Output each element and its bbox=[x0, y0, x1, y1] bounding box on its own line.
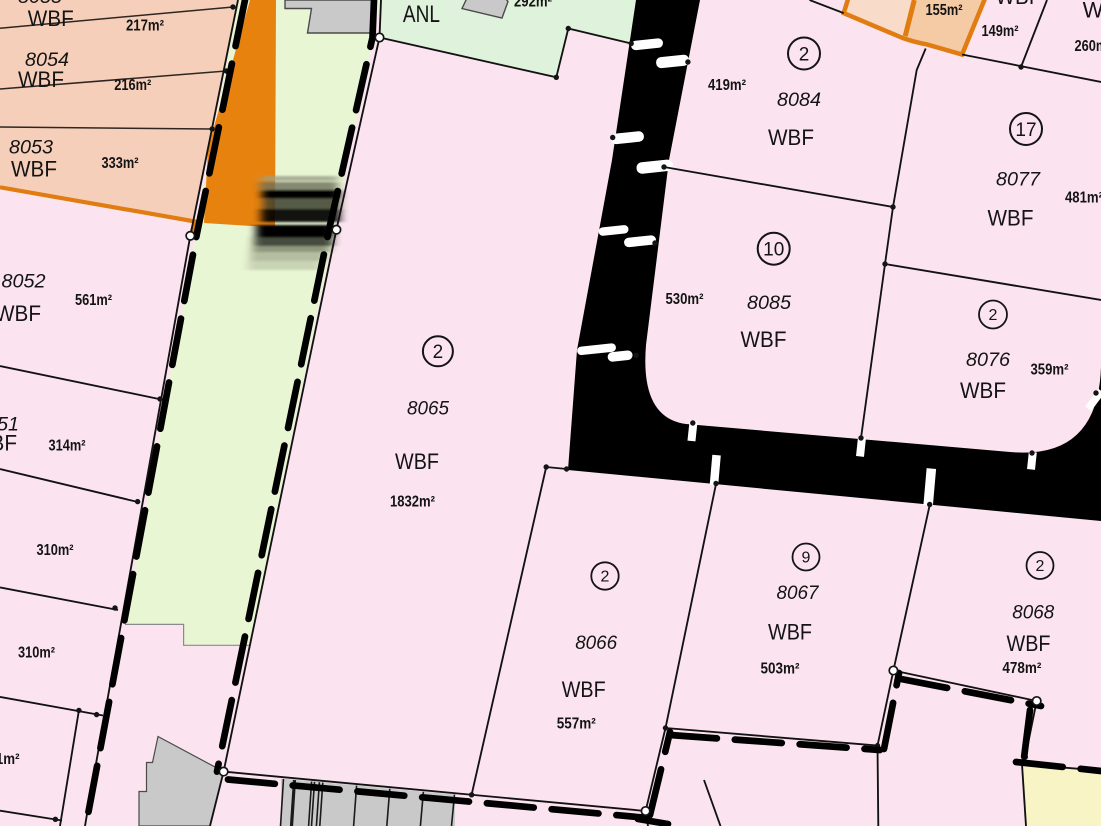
svg-text:91m²: 91m² bbox=[0, 751, 20, 768]
svg-text:292m²: 292m² bbox=[514, 0, 552, 11]
svg-text:359m²: 359m² bbox=[1031, 362, 1069, 379]
svg-text:WBF: WBF bbox=[741, 327, 787, 352]
svg-text:481m²: 481m² bbox=[1065, 190, 1101, 207]
svg-text:WBF: WBF bbox=[11, 157, 57, 182]
svg-text:WBF: WBF bbox=[988, 206, 1034, 231]
svg-text:333m²: 333m² bbox=[102, 155, 139, 172]
svg-text:561m²: 561m² bbox=[75, 292, 112, 309]
svg-text:W: W bbox=[1083, 0, 1101, 23]
svg-text:2: 2 bbox=[989, 307, 998, 324]
svg-text:314m²: 314m² bbox=[49, 438, 86, 455]
svg-text:WBF: WBF bbox=[395, 449, 439, 474]
svg-text:155m²: 155m² bbox=[926, 2, 963, 19]
svg-text:9: 9 bbox=[802, 550, 811, 567]
svg-text:8084: 8084 bbox=[777, 89, 821, 111]
svg-text:260m²: 260m² bbox=[1075, 38, 1101, 55]
svg-text:8065: 8065 bbox=[407, 398, 449, 420]
svg-text:WBF: WBF bbox=[18, 67, 64, 92]
svg-text:2: 2 bbox=[601, 569, 610, 586]
svg-text:WBF: WBF bbox=[28, 6, 74, 31]
svg-text:419m²: 419m² bbox=[708, 77, 746, 94]
svg-text:478m²: 478m² bbox=[1002, 660, 1041, 677]
svg-text:WBF: WBF bbox=[996, 0, 1042, 9]
svg-text:8066: 8066 bbox=[575, 632, 617, 654]
svg-text:2: 2 bbox=[433, 342, 444, 363]
svg-text:WBF: WBF bbox=[562, 677, 606, 702]
svg-text:WBF: WBF bbox=[0, 431, 17, 456]
svg-text:503m²: 503m² bbox=[761, 661, 800, 678]
svg-text:8085: 8085 bbox=[747, 292, 791, 314]
svg-text:8076: 8076 bbox=[966, 349, 1010, 371]
svg-text:8068: 8068 bbox=[1012, 602, 1054, 624]
svg-text:WBF: WBF bbox=[768, 125, 814, 150]
svg-text:10: 10 bbox=[763, 240, 784, 261]
svg-text:17: 17 bbox=[1015, 120, 1036, 141]
svg-text:ANL: ANL bbox=[403, 1, 440, 28]
svg-text:WBF: WBF bbox=[768, 620, 812, 645]
svg-text:557m²: 557m² bbox=[557, 716, 596, 733]
svg-text:1832m²: 1832m² bbox=[390, 494, 435, 511]
svg-text:2: 2 bbox=[1036, 558, 1045, 575]
svg-text:217m²: 217m² bbox=[126, 18, 164, 35]
svg-text:2: 2 bbox=[799, 45, 810, 66]
svg-text:310m²: 310m² bbox=[37, 542, 74, 559]
svg-text:WBF: WBF bbox=[1007, 631, 1051, 656]
svg-text:216m²: 216m² bbox=[114, 77, 151, 94]
svg-text:WBF: WBF bbox=[960, 378, 1006, 403]
svg-text:WBF: WBF bbox=[0, 301, 41, 326]
svg-text:8053: 8053 bbox=[9, 137, 53, 159]
svg-text:8067: 8067 bbox=[777, 582, 820, 604]
svg-text:530m²: 530m² bbox=[666, 291, 704, 308]
svg-text:8077: 8077 bbox=[996, 169, 1041, 191]
svg-text:149m²: 149m² bbox=[982, 23, 1019, 40]
svg-text:8052: 8052 bbox=[2, 271, 46, 293]
svg-text:310m²: 310m² bbox=[18, 645, 55, 662]
